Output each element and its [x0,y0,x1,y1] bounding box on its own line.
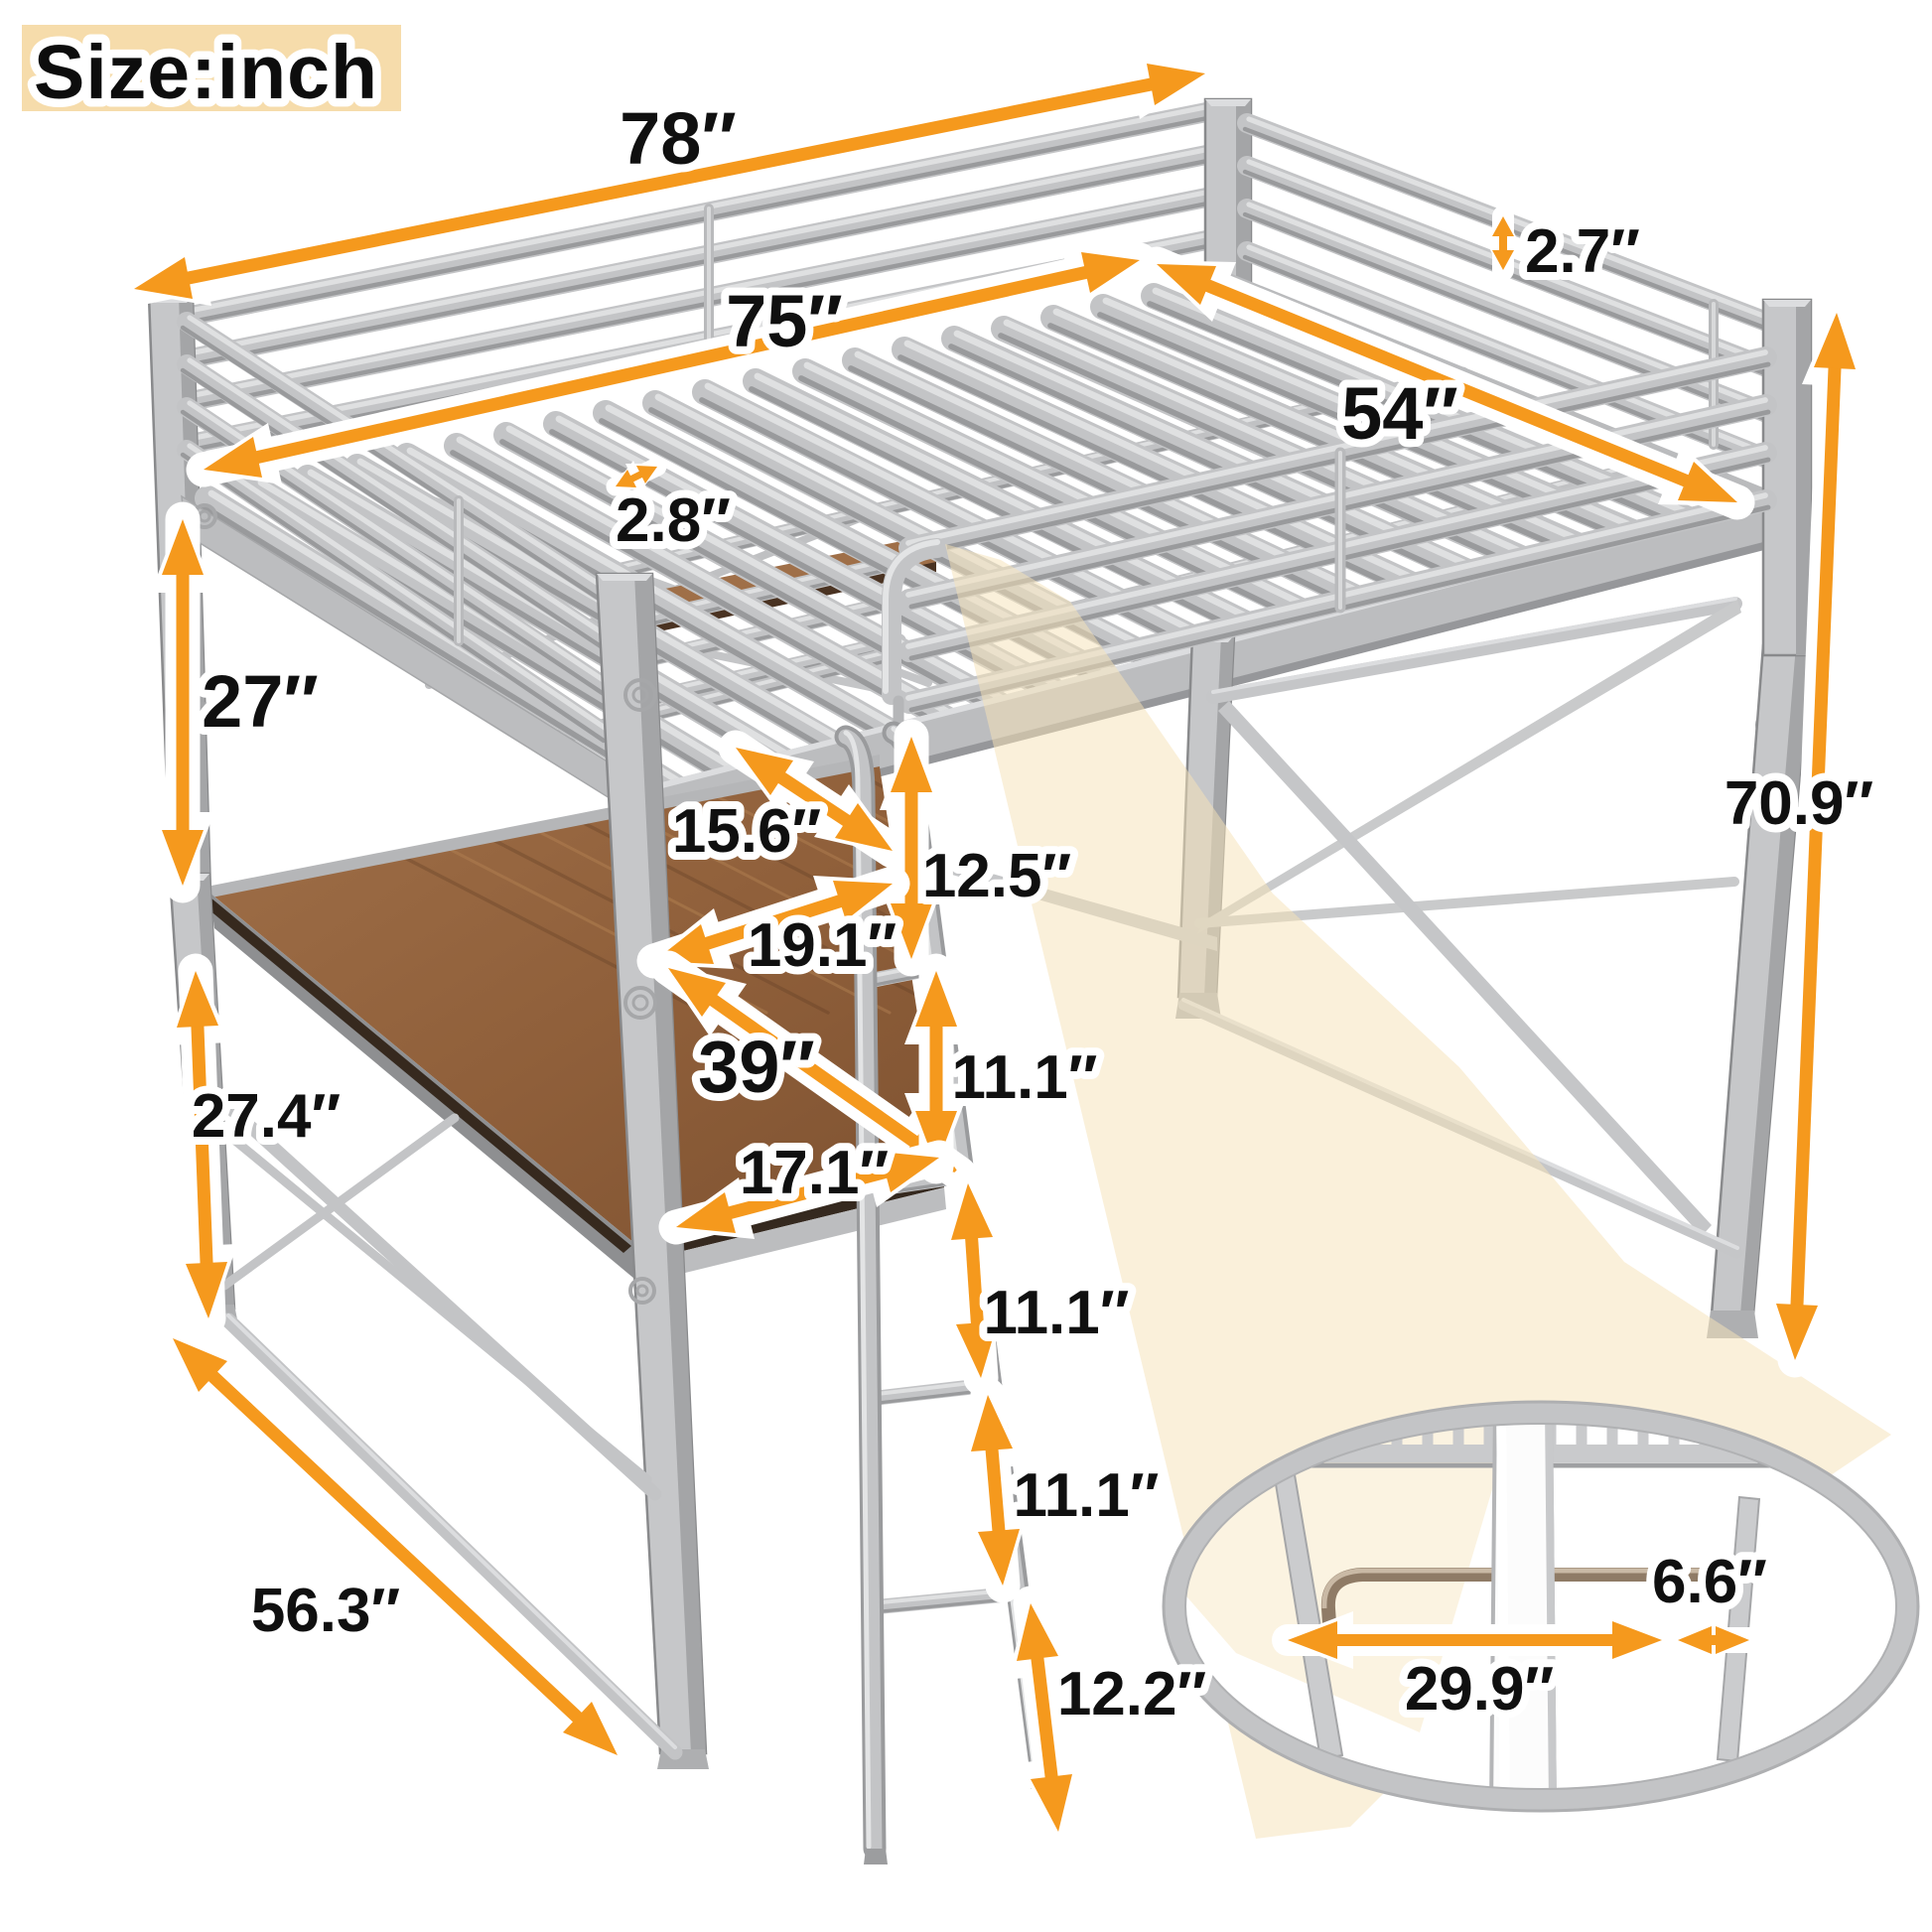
svg-text:17.1″: 17.1″ [740,1139,889,1207]
svg-text:54″: 54″ [1341,372,1458,455]
svg-text:19.1″: 19.1″ [748,911,897,980]
svg-text:2.7″: 2.7″ [1525,217,1640,286]
svg-text:78″: 78″ [620,97,737,180]
svg-text:39″: 39″ [698,1026,815,1108]
svg-text:12.5″: 12.5″ [922,842,1071,910]
svg-text:12.2″: 12.2″ [1057,1660,1206,1728]
svg-text:29.9″: 29.9″ [1405,1655,1554,1724]
svg-text:2.8″: 2.8″ [616,486,731,555]
svg-text:15.6″: 15.6″ [672,797,821,866]
svg-text:11.1″: 11.1″ [984,1279,1130,1347]
svg-text:11.1″: 11.1″ [1014,1461,1160,1530]
svg-text:27.4″: 27.4″ [192,1082,341,1151]
svg-text:11.1″: 11.1″ [952,1043,1098,1112]
svg-text:70.9″: 70.9″ [1725,769,1873,838]
svg-text:75″: 75″ [726,280,843,362]
svg-text:56.3″: 56.3″ [251,1577,400,1645]
svg-text:Size:inch: Size:inch [34,30,378,115]
svg-text:27″: 27″ [202,660,319,743]
svg-text:6.6″: 6.6″ [1652,1548,1767,1616]
